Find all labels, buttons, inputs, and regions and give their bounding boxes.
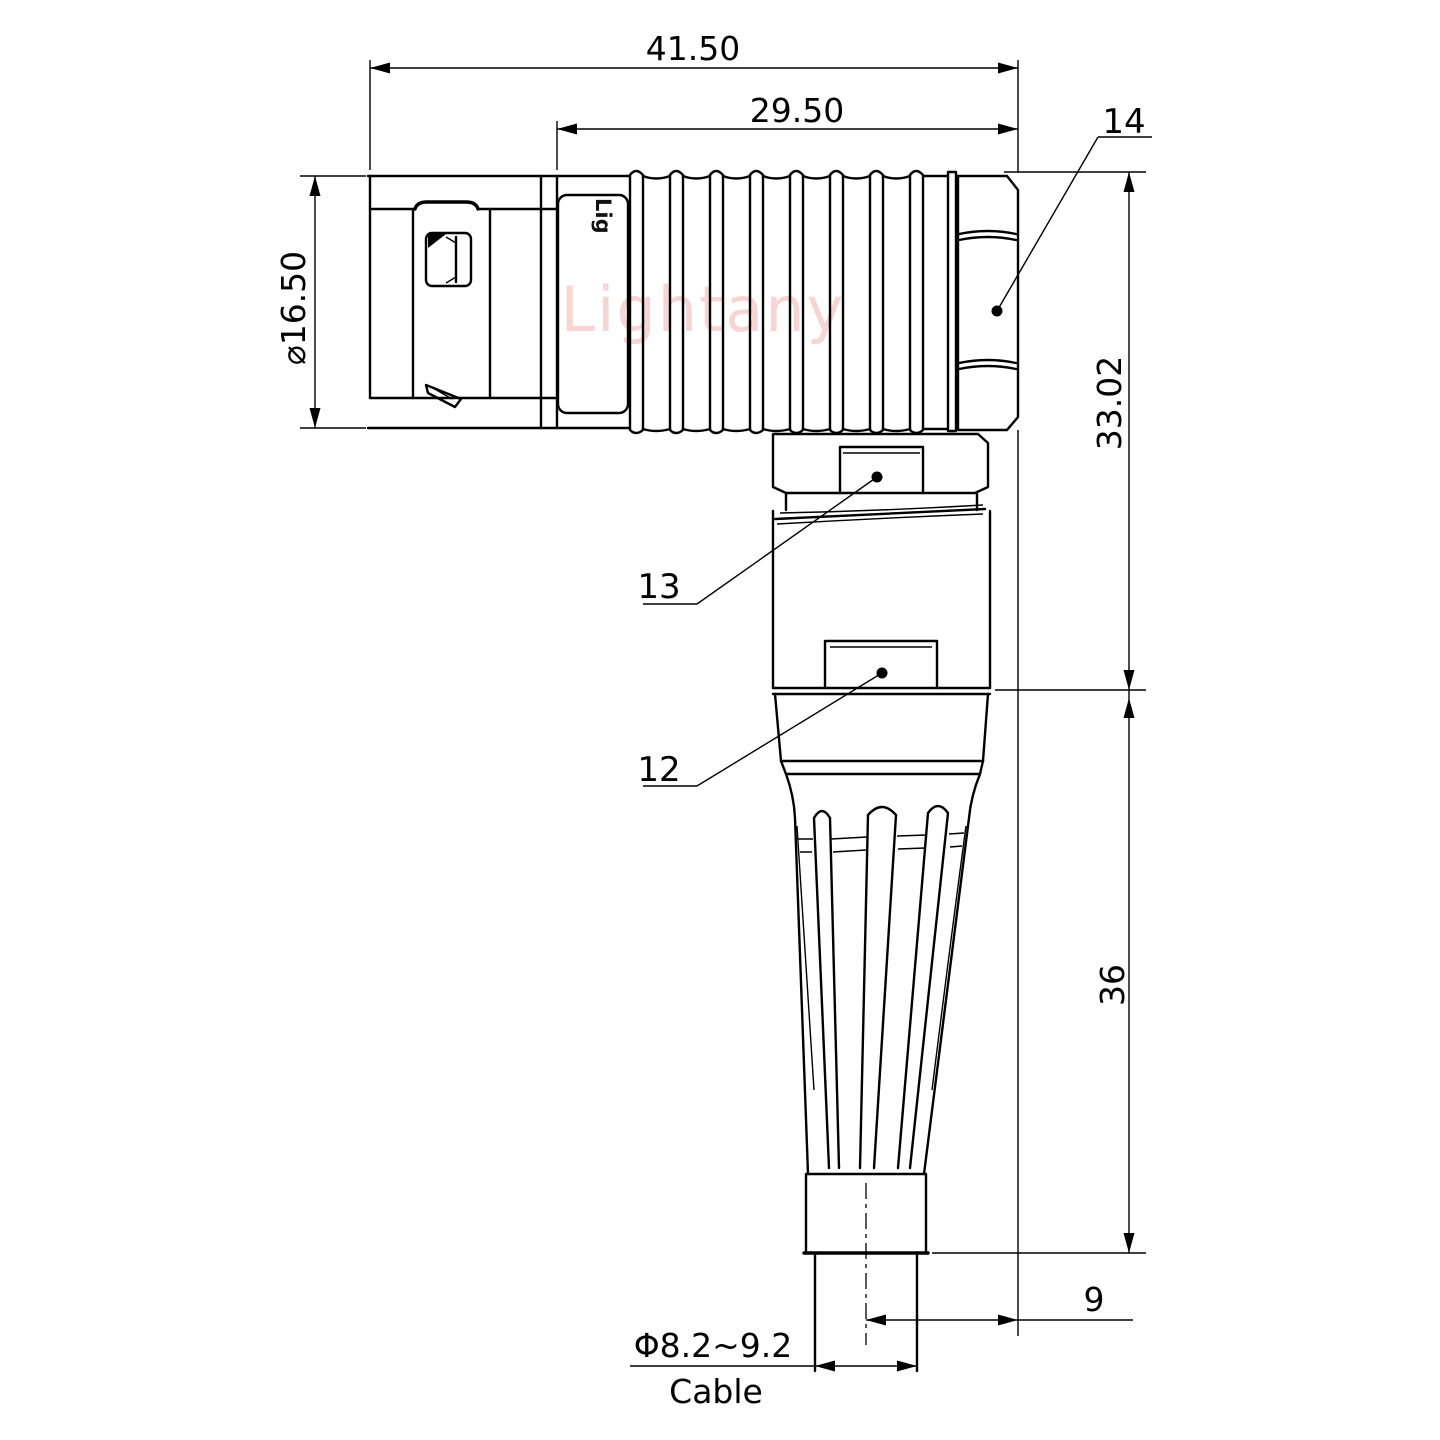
gland-shoulder-sides — [775, 694, 988, 761]
arrowhead-41-50-left — [370, 63, 390, 74]
finger-slot-3 — [898, 806, 948, 1168]
finger-web-2 — [800, 846, 962, 852]
dim-text-height-upper: 33.02 — [1090, 356, 1129, 450]
arrowhead-36-bottom — [1124, 1233, 1135, 1253]
dimension-cable-offset: 9 — [866, 430, 1133, 1336]
callout-14: 14 — [992, 102, 1153, 317]
arrowhead-cable-left — [815, 1361, 835, 1372]
latch-bump — [415, 202, 478, 209]
ext-lines-41-50 — [370, 60, 1018, 173]
dim-text-shell-diameter: ⌀16.50 — [274, 251, 313, 365]
dimension-overall-length: 41.50 — [370, 29, 1018, 173]
release-notch — [426, 385, 461, 407]
keyway-shadow — [428, 234, 446, 248]
nut-facet-upper — [959, 231, 1016, 240]
callout-12-leader — [697, 673, 882, 786]
nut-facet-lower — [959, 360, 1016, 369]
technical-drawing-canvas: Lightany Lig — [0, 0, 1440, 1440]
rib-7 — [870, 171, 883, 433]
cable-label: Cable — [669, 1372, 763, 1411]
callout-14-leader — [997, 137, 1098, 311]
arrowhead-41-50-right — [998, 63, 1018, 74]
arrowhead-9-left — [866, 1315, 886, 1326]
dimension-cable-diameter: Φ8.2~9.2 Cable — [630, 1326, 917, 1411]
arrowhead-36-top — [1124, 698, 1135, 718]
callout-12-number: 12 — [637, 750, 680, 790]
dim-text-height-lower: 36 — [1093, 964, 1132, 1006]
notch-outline — [426, 385, 461, 407]
rib-8 — [910, 171, 923, 433]
keyway-window — [426, 233, 471, 286]
dim-text-body-length: 29.50 — [750, 91, 844, 130]
nut-outline — [958, 176, 1018, 430]
arrowhead-33-02-bottom — [1124, 670, 1135, 690]
strain-relief — [775, 694, 988, 1371]
callout-13-dot — [872, 472, 883, 483]
arrowhead-9-right — [998, 1315, 1018, 1326]
dimension-height-lower: 36 — [932, 698, 1146, 1253]
arrowhead-cable-right — [897, 1361, 917, 1372]
rib-valleys-bottom — [643, 429, 948, 431]
callout-13-number: 13 — [637, 567, 680, 607]
callout-14-dot — [992, 306, 1003, 317]
finger-web-1 — [798, 833, 964, 839]
coupling-nut — [958, 176, 1018, 430]
dim-text-cable-offset: 9 — [1084, 1280, 1105, 1319]
finger-slot-1 — [814, 811, 839, 1168]
housing-flat — [825, 641, 937, 688]
dimension-shell-diameter: ⌀16.50 — [274, 176, 366, 428]
arrowhead-29-50-left — [557, 124, 577, 135]
sleeve-marking: Lig — [591, 198, 615, 234]
backnut-outline — [773, 434, 988, 493]
keyway-bevels — [446, 237, 456, 283]
callout-12: 12 — [637, 668, 887, 791]
backnut-flat — [840, 447, 923, 493]
dim-text-cable-diameter: Φ8.2~9.2 — [634, 1326, 793, 1365]
callout-14-number: 14 — [1102, 102, 1145, 142]
dim-text-overall-length: 41.50 — [646, 29, 740, 68]
callout-12-dot — [877, 668, 888, 679]
gland-shoulder-step — [781, 761, 983, 774]
arrowhead-29-50-right — [998, 124, 1018, 135]
washer-ring — [948, 172, 956, 431]
arrowhead-16-50-top — [310, 176, 321, 196]
elbow-body — [773, 434, 990, 694]
rib-valleys-top — [643, 176, 948, 179]
arrowhead-33-02-top — [1124, 172, 1135, 192]
arrowhead-16-50-bottom — [310, 408, 321, 428]
housing-bottom-edges — [773, 688, 990, 694]
dimension-body-length: 29.50 — [557, 91, 1018, 170]
finger-slot-2 — [860, 807, 896, 1168]
